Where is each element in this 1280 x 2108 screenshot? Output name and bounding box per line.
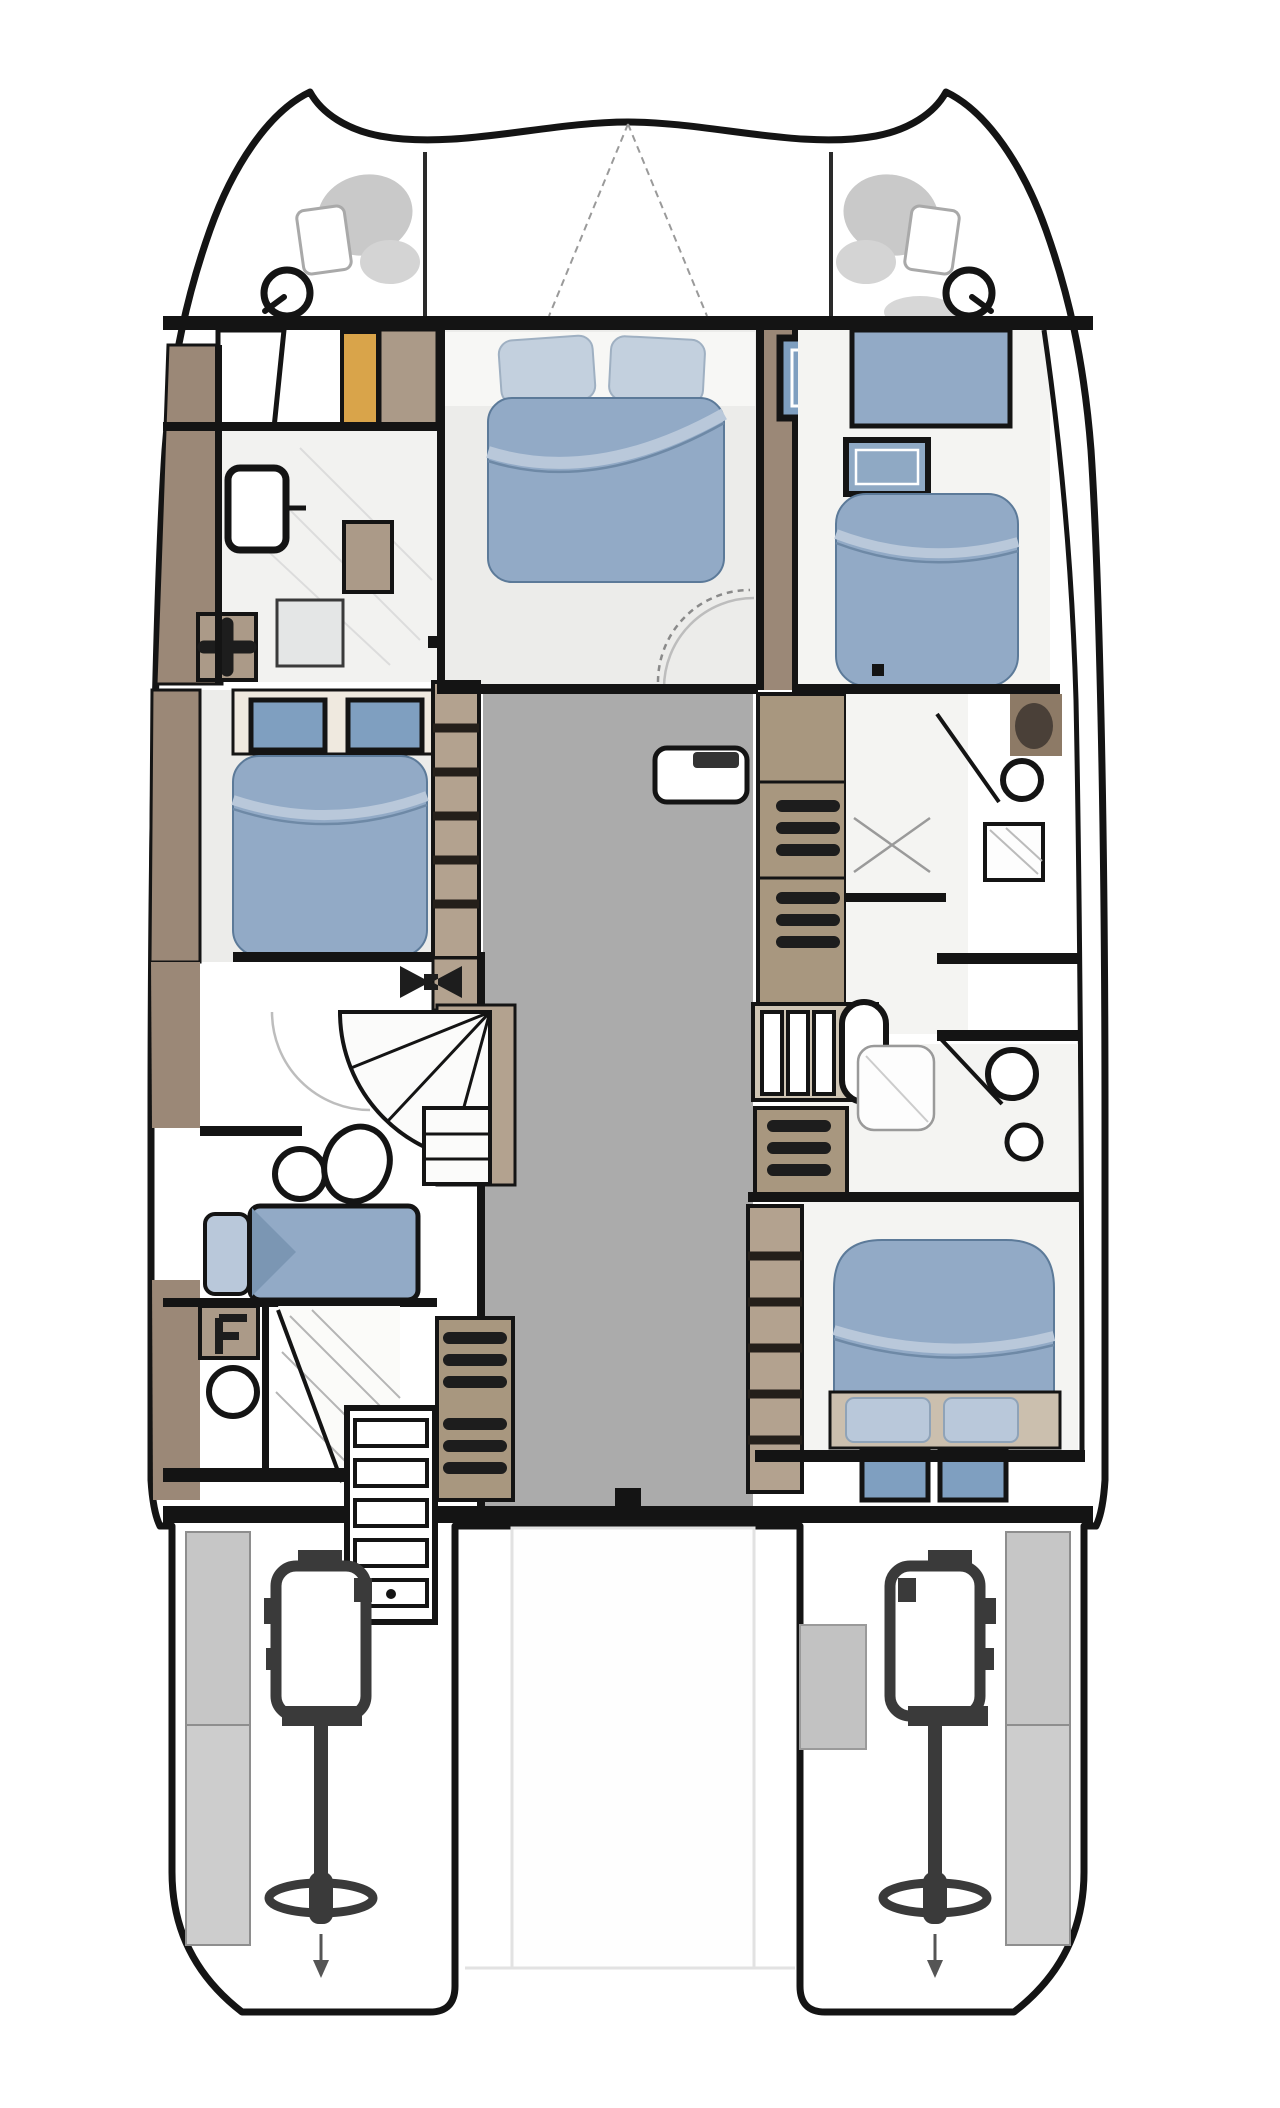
sink-stbd-aft [1007, 1125, 1041, 1159]
engine-port-hub [309, 1872, 333, 1924]
toilet-port-aft [209, 1368, 257, 1416]
genset-box-stbd [800, 1625, 866, 1749]
hullside-port-aft-2 [152, 1280, 200, 1500]
anchor-hatch-port [296, 205, 352, 275]
engine-stbd-hub [923, 1872, 947, 1924]
windlass-stbd-blob2 [836, 240, 896, 284]
pillow-stbd-1 [846, 1398, 930, 1442]
wall-stbd-mid-2 [937, 953, 1080, 964]
tank-stbd-aft [1006, 1725, 1070, 1945]
stair-step-1 [355, 1420, 427, 1446]
pillow-master-right [608, 336, 705, 405]
windlass-port-blob2 [360, 240, 420, 284]
single-berth-pillow [205, 1214, 249, 1294]
wall-day-head-port [200, 1126, 302, 1136]
window-port-mid-1 [251, 700, 325, 750]
engine-port-shaft [314, 1724, 328, 1886]
hullside-port-aft-1 [151, 962, 200, 1128]
stair-slat-stbd-2 [788, 1012, 808, 1094]
wall-port-fwd-vert [215, 345, 222, 684]
cabinet-tan-fwd [380, 330, 437, 426]
saloon-step-bar [693, 752, 739, 768]
wall-port-mid-bottom [233, 952, 437, 962]
hullside-port-mid [150, 690, 200, 962]
corridor-floor [483, 694, 753, 1506]
stair-step-dot [386, 1589, 396, 1599]
stair-slat-stbd-3 [814, 1012, 834, 1094]
wall-stbd-aft-1 [748, 1192, 1080, 1202]
pillow-stbd-2 [944, 1398, 1018, 1442]
toilet-stbd-aft [988, 1050, 1036, 1098]
pillow-master-left [498, 335, 596, 405]
floorplan-page [0, 0, 1280, 2108]
galley-column [758, 694, 846, 1034]
window-frosted-port [277, 600, 343, 666]
steps-lower-port [424, 1108, 490, 1184]
window-stbd-fwd [846, 440, 928, 494]
aft-wall-stbd [755, 1450, 1085, 1462]
chain-locker-room [218, 330, 284, 428]
door-pivot-dot-stbd [872, 664, 884, 676]
anchor-hatch-stbd [904, 205, 960, 275]
stair-step-3 [355, 1500, 427, 1526]
toilet-stbd-fwd [1015, 703, 1053, 749]
corridor-top-wall [437, 684, 758, 694]
aft-wall-port [163, 1468, 347, 1482]
door-pivot-dot-port [428, 636, 440, 648]
tank-port-fwd [186, 1532, 250, 1725]
wall-stbd-mid-1 [846, 893, 946, 902]
engine-stbd-shaft [928, 1724, 942, 1886]
wall-master-right [756, 330, 764, 690]
berth-bench-stbd [852, 330, 1010, 426]
partition-port-aft [262, 1306, 269, 1472]
stbd-aft-bed [834, 1240, 1054, 1394]
tank-port-aft [186, 1725, 250, 1945]
stbd-fwd-bed [836, 494, 1018, 686]
window-port-mid-2 [348, 700, 422, 750]
wall-head-top-port [163, 422, 437, 431]
engine-port-body [276, 1566, 366, 1716]
stair-step-2 [355, 1460, 427, 1486]
tank-stbd-fwd [1006, 1532, 1070, 1725]
sink-stbd-fwd [1003, 761, 1041, 799]
aft-bulkhead [163, 1506, 1093, 1523]
bulkhead-latch [615, 1488, 641, 1506]
toilet-day-port [275, 1149, 325, 1199]
master-headboard [445, 332, 755, 406]
cockpit-panel [512, 1528, 754, 1968]
cabinet-orange [342, 332, 378, 424]
sink-port-fwd [228, 468, 286, 550]
stair-step-4 [355, 1540, 427, 1566]
wall-stbd-mid-3 [937, 1030, 1080, 1041]
cabinet-small-port [344, 522, 392, 592]
stair-slat-stbd-1 [762, 1012, 782, 1094]
port-mid-bed [233, 756, 427, 956]
floorplan-svg [0, 0, 1280, 2108]
